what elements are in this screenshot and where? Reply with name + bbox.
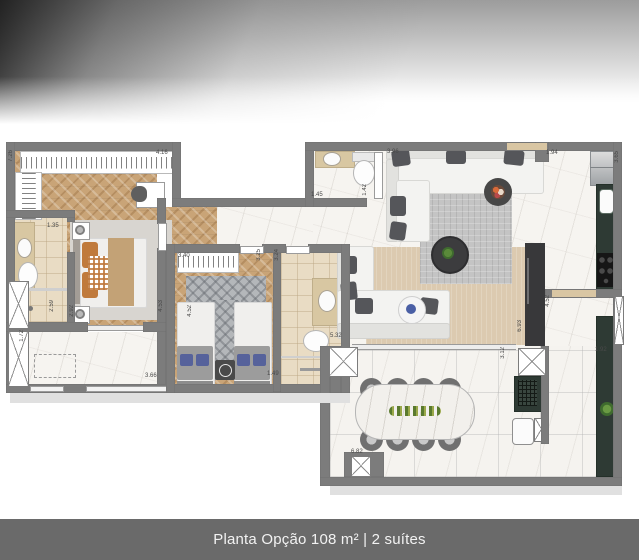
table-flowers-icon xyxy=(389,406,441,416)
gourmet-counter xyxy=(596,316,614,477)
plan-shadow xyxy=(10,393,350,403)
grill-grate xyxy=(518,380,537,406)
dim-label: 7.26 xyxy=(8,150,14,162)
pillow xyxy=(503,149,524,166)
dim-label: 3.65 xyxy=(614,151,620,163)
gradient-header xyxy=(0,0,639,132)
fridge-door-line xyxy=(590,167,614,168)
plant-icon xyxy=(442,247,454,259)
dim-label: 3.96 xyxy=(387,149,399,155)
pillow xyxy=(446,150,466,164)
tv-screen-icon xyxy=(527,258,529,304)
pillow xyxy=(196,354,209,366)
lavabo-door xyxy=(374,152,383,199)
shaft-box xyxy=(8,281,29,329)
wall xyxy=(67,252,75,330)
dim-label: 1.45 xyxy=(311,192,323,198)
terrace-doorway-mat xyxy=(552,290,596,297)
dim-label: 3.66 xyxy=(145,373,157,379)
blue-decor-icon xyxy=(406,304,416,314)
wall xyxy=(6,210,75,218)
bar-sink-icon xyxy=(512,418,534,445)
pillow xyxy=(389,221,407,241)
floorplan-page: 7.26 4.16 1.35 2.59 2.92 4.53 1.72 3.66 … xyxy=(0,0,639,560)
dim-label: 3.12 xyxy=(500,347,506,359)
wall xyxy=(330,375,341,393)
caption-text: Planta Opção 108 m² | 2 suítes xyxy=(213,531,426,548)
pillow xyxy=(355,298,373,314)
dim-label: 1.72 xyxy=(19,330,25,342)
service-door xyxy=(614,296,624,345)
optional-furniture-outline xyxy=(34,354,76,378)
shaft-box xyxy=(351,456,371,477)
pillow xyxy=(180,354,193,366)
wall xyxy=(172,198,313,207)
bed-runner xyxy=(108,238,134,306)
plant-icon xyxy=(600,402,614,416)
wall xyxy=(157,248,166,393)
wall xyxy=(305,142,622,151)
shaft-box xyxy=(329,347,358,377)
lamp-icon xyxy=(75,309,85,319)
sink-icon xyxy=(323,152,341,166)
wall xyxy=(143,322,166,332)
dim-label: 6.93 xyxy=(517,320,523,332)
kitchen-sink-icon xyxy=(599,189,614,214)
sliding-door xyxy=(88,325,143,331)
dim-label: 4.52 xyxy=(187,305,193,317)
dim-label: 4.52 xyxy=(545,295,551,307)
hall-wood-floor xyxy=(166,207,217,247)
wall xyxy=(166,244,175,393)
dim-label: 1.94 xyxy=(546,150,558,156)
shaft-box xyxy=(518,348,546,376)
toilet-icon xyxy=(353,160,375,186)
dim-label: 2.59 xyxy=(49,300,55,312)
hall-marble-floor xyxy=(217,207,313,247)
dim-label: 1.35 xyxy=(47,223,59,229)
wall xyxy=(6,142,181,151)
dim-label: 6.82 xyxy=(351,449,363,455)
master-wardrobe-icon xyxy=(20,151,174,174)
dim-label: 4.53 xyxy=(158,300,164,312)
dim-label: 1.42 xyxy=(362,184,368,196)
wall xyxy=(166,244,240,253)
dim-label: 3.40 xyxy=(178,253,190,259)
dim-label: 2.92 xyxy=(69,305,75,317)
lamp-icon xyxy=(75,225,85,235)
suite2-bath-door xyxy=(286,246,310,254)
bedside-lamp-icon xyxy=(219,364,232,377)
grab-bar xyxy=(300,368,320,371)
dim-label: 5.32 xyxy=(330,333,342,339)
caption-banner: Planta Opção 108 m² | 2 suítes xyxy=(0,519,639,560)
sliding-glass-door xyxy=(352,344,516,350)
desk-chair-icon xyxy=(131,186,147,202)
wall xyxy=(320,477,622,486)
dim-label: 3.25 xyxy=(256,249,262,261)
sofa-back xyxy=(337,323,450,339)
pillow xyxy=(237,354,250,366)
dim-label: 1.92 xyxy=(595,347,607,353)
dim-label: 3.24 xyxy=(274,249,280,261)
plan-shadow xyxy=(330,486,622,495)
sink-icon xyxy=(17,238,32,258)
sink-icon xyxy=(318,290,336,312)
entry-door-mat xyxy=(507,143,547,150)
flower-vase-icon xyxy=(491,185,505,199)
plaid-throw xyxy=(88,256,108,290)
window-icon xyxy=(86,386,172,392)
cooktop-icon xyxy=(597,253,614,287)
window-icon xyxy=(30,386,64,392)
wall xyxy=(313,198,367,207)
dim-label: 1.49 xyxy=(267,371,279,377)
wall xyxy=(157,198,166,224)
pillow xyxy=(253,354,266,366)
dim-label: 4.16 xyxy=(156,150,168,156)
pillow xyxy=(390,196,406,216)
